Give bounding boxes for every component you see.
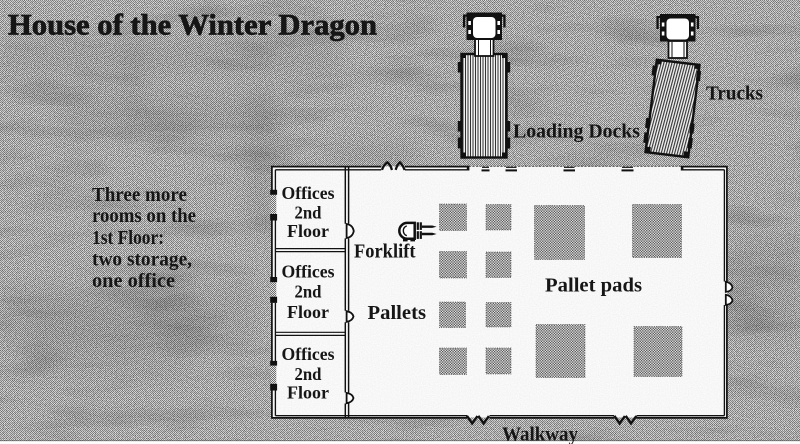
svg-text:House of the Winter Dragon: House of the Winter Dragon — [8, 9, 377, 42]
svg-text:Pallet pads: Pallet pads — [545, 275, 642, 297]
svg-text:Floor: Floor — [287, 302, 329, 322]
svg-text:Offices: Offices — [282, 261, 335, 281]
svg-text:two storage,: two storage, — [92, 250, 192, 271]
svg-text:1st Floor:: 1st Floor: — [92, 228, 164, 249]
svg-text:Forklift: Forklift — [354, 241, 416, 263]
svg-text:2nd: 2nd — [295, 364, 322, 384]
svg-text:Trucks: Trucks — [706, 82, 763, 104]
svg-text:Floor: Floor — [287, 383, 329, 403]
svg-text:2nd: 2nd — [295, 281, 322, 301]
svg-text:2nd: 2nd — [295, 202, 322, 222]
svg-text:Floor: Floor — [287, 221, 329, 241]
svg-text:rooms on the: rooms on the — [92, 206, 196, 227]
svg-text:Pallets: Pallets — [368, 302, 427, 324]
svg-text:Offices: Offices — [282, 344, 335, 364]
svg-text:one office: one office — [92, 271, 175, 292]
svg-text:Three more: Three more — [92, 185, 187, 206]
svg-text:Offices: Offices — [282, 183, 335, 203]
svg-text:Walkway: Walkway — [502, 424, 578, 444]
svg-text:Loading Docks: Loading Docks — [513, 120, 640, 142]
